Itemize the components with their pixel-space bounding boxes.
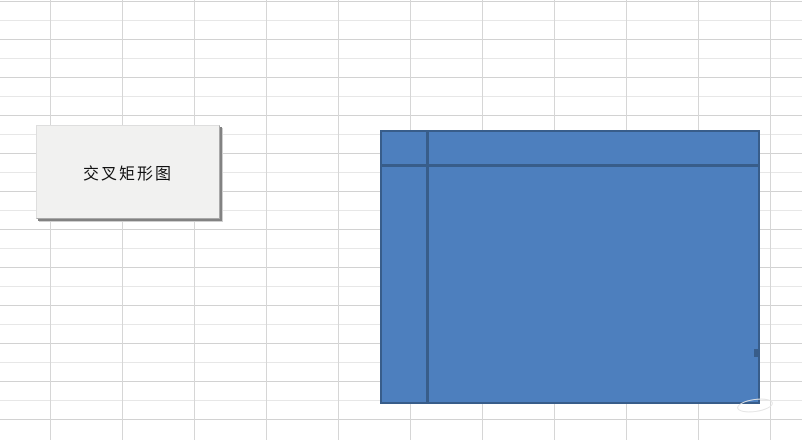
shape-horizontal-divider — [381, 164, 758, 167]
macro-button[interactable]: 交叉矩形图 — [36, 125, 220, 219]
crossed-rectangles-shape[interactable] — [380, 130, 760, 404]
shape-right-edge-notch — [754, 349, 760, 357]
shape-vertical-divider — [426, 131, 429, 403]
excel-window: 交叉矩形图 — [0, 0, 802, 440]
macro-button-label: 交叉矩形图 — [83, 160, 173, 184]
